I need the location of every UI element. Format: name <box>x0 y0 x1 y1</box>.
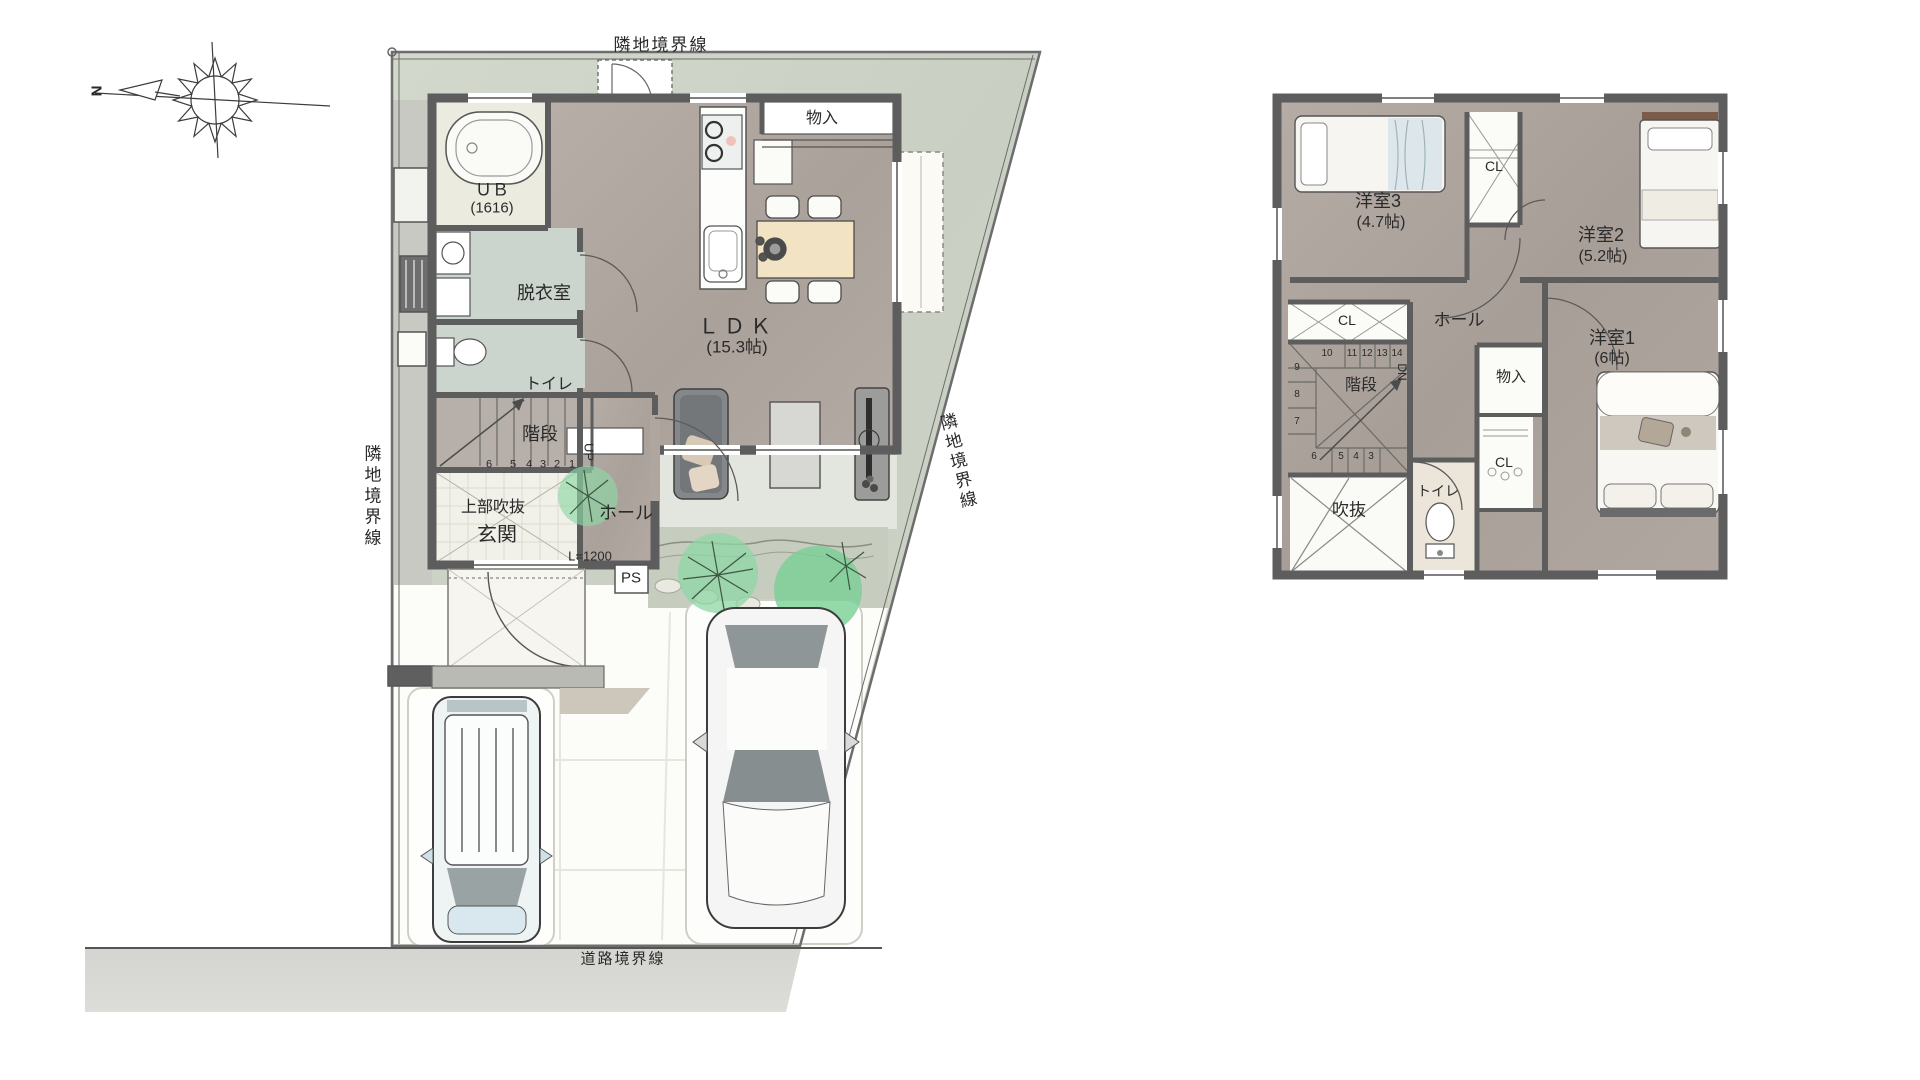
floor-plan-page: 隣地境界線 隣地境界線 隣地境界線 道路境界線 N ＵＢ (1616) 脱衣室 … <box>0 0 1920 1080</box>
boundary-label-top: 隣地境界線 <box>614 37 709 54</box>
ps-label: PS <box>621 571 641 586</box>
room-label-entrance: 玄関 <box>477 525 517 545</box>
room-label-dressing: 脱衣室 <box>517 284 571 302</box>
stair-number: 6 <box>486 460 492 471</box>
tv-board <box>855 388 889 500</box>
stair-number: 6 <box>1311 452 1317 462</box>
site-plan-drawing <box>0 0 1920 1080</box>
stairs-direction-up: UP <box>583 443 596 461</box>
compass-north-label: N <box>90 86 105 97</box>
stair-number: 1 <box>569 460 575 471</box>
room-size-bedroom3: (4.7帖) <box>1357 215 1406 231</box>
compass-icon <box>95 42 330 158</box>
boundary-label-road: 道路境界線 <box>580 952 665 967</box>
room-label-ldk: ＬＤＫ <box>698 317 776 338</box>
stairs-direction-dn: DN <box>1396 363 1408 380</box>
room-label-toilet-2f: トイレ <box>1417 484 1459 498</box>
closet-label-left: CL <box>1338 313 1356 327</box>
stair-number: 14 <box>1391 349 1402 359</box>
bathtub <box>446 112 542 184</box>
deck <box>899 152 943 312</box>
toilet-fixture-2f <box>1426 503 1454 558</box>
room-label-void-2f: 吹抜 <box>1332 502 1366 519</box>
stair-number: 4 <box>1353 452 1359 462</box>
stair-number: 3 <box>1368 452 1374 462</box>
closet-label-bottom: CL <box>1495 455 1513 469</box>
room-size-bedroom1: (6帖) <box>1594 351 1630 367</box>
room-label-stairs-2f: 階段 <box>1345 378 1377 394</box>
room-label-hall-1f: ホール <box>599 504 653 522</box>
stair-number: 4 <box>526 460 532 471</box>
room-label-bedroom2: 洋室2 <box>1578 226 1624 244</box>
stair-number: 3 <box>540 460 546 471</box>
room-label-toilet-1f: トイレ <box>525 377 573 393</box>
stair-number: 10 <box>1321 349 1332 359</box>
stair-number: 2 <box>554 460 560 471</box>
stair-number: 5 <box>1338 452 1344 462</box>
laundry <box>436 232 470 316</box>
room-size-bedroom2: (5.2帖) <box>1579 249 1628 265</box>
bed-bedroom1 <box>1597 372 1719 517</box>
room-size-ub: (1616) <box>470 201 513 216</box>
stair-number: 7 <box>1294 417 1300 427</box>
room-label-storage-2f: 物入 <box>1496 370 1526 385</box>
stair-number: 8 <box>1294 390 1300 400</box>
toilet-fixture-1f <box>436 338 486 366</box>
bed-bedroom3 <box>1295 116 1445 192</box>
sofa <box>674 389 728 499</box>
room-label-stairs-1f: 階段 <box>522 425 558 443</box>
stair-number: 5 <box>510 460 516 471</box>
bed-bedroom2 <box>1640 112 1720 248</box>
stair-number: 9 <box>1294 363 1300 373</box>
room-label-storage-1f: 物入 <box>806 111 838 127</box>
room-size-ldk: (15.3帖) <box>706 339 767 356</box>
van <box>421 697 552 942</box>
room-label-void-above: 上部吹抜 <box>461 500 525 516</box>
boundary-label-left: 隣地境界線 <box>363 445 380 550</box>
room-label-bedroom1: 洋室1 <box>1589 329 1635 347</box>
room-label-ub: ＵＢ <box>475 182 509 199</box>
room-label-bedroom3: 洋室3 <box>1355 192 1401 210</box>
closet-label-top: CL <box>1485 159 1503 173</box>
sedan <box>693 608 859 928</box>
entrance-width-label: L=1200 <box>568 550 612 563</box>
stair-number: 12 <box>1361 349 1372 359</box>
stair-number: 13 <box>1376 349 1387 359</box>
stair-number: 11 <box>1347 349 1357 359</box>
road <box>85 948 882 1012</box>
room-label-hall-2f: ホール <box>1434 312 1485 329</box>
